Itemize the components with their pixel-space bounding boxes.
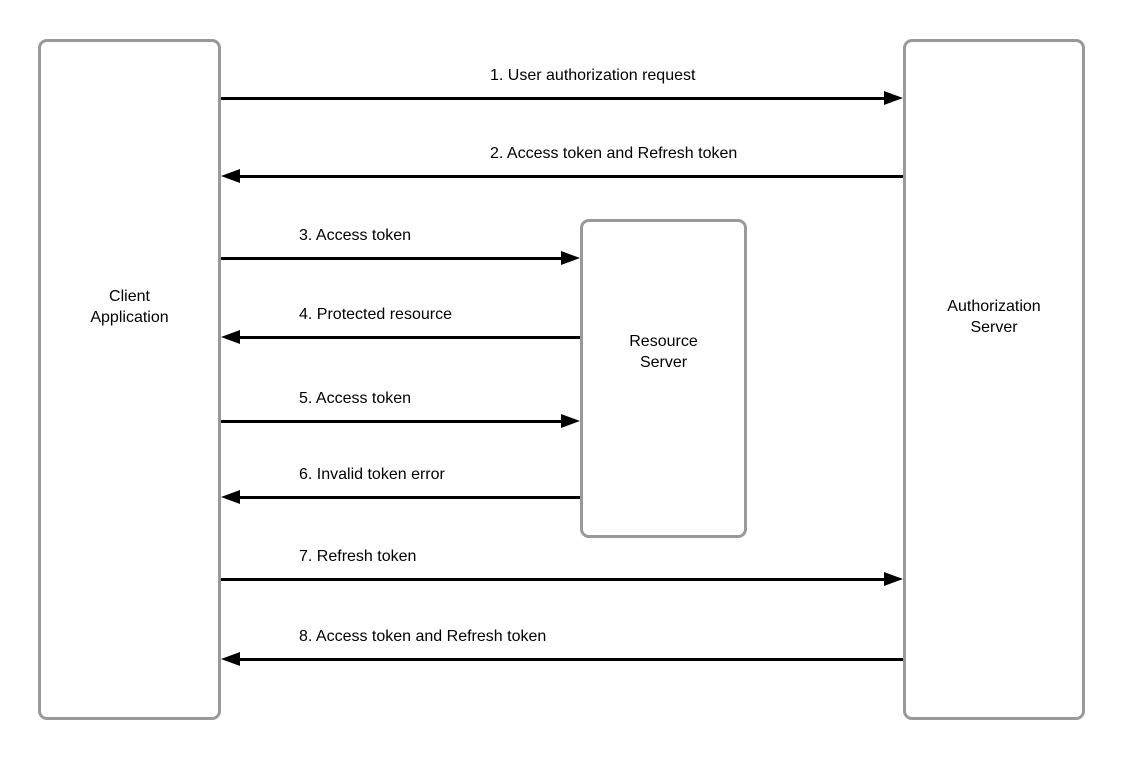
message-line — [233, 336, 580, 339]
arrowhead-right-icon — [561, 251, 580, 265]
resource-server-label: Resource Server — [583, 331, 744, 373]
client-application-box: Client Application — [38, 39, 221, 720]
message-line — [221, 420, 568, 423]
message-line — [221, 97, 891, 100]
message-line — [221, 257, 568, 260]
message-label-2: 2. Access token and Refresh token — [490, 144, 737, 164]
message-label-7: 7. Refresh token — [299, 547, 416, 567]
diagram-canvas: Client Application Resource Server Autho… — [0, 0, 1122, 760]
arrowhead-left-icon — [221, 490, 240, 504]
message-line — [233, 175, 903, 178]
message-line — [233, 496, 580, 499]
message-label-8: 8. Access token and Refresh token — [299, 627, 546, 647]
message-line — [221, 578, 891, 581]
arrowhead-left-icon — [221, 169, 240, 183]
arrowhead-left-icon — [221, 330, 240, 344]
message-label-5: 5. Access token — [299, 389, 411, 409]
arrowhead-right-icon — [561, 414, 580, 428]
message-label-4: 4. Protected resource — [299, 305, 452, 325]
authorization-server-box: Authorization Server — [903, 39, 1085, 720]
arrowhead-right-icon — [884, 572, 903, 586]
arrowhead-left-icon — [221, 652, 240, 666]
authorization-server-label: Authorization Server — [906, 296, 1082, 338]
message-label-3: 3. Access token — [299, 226, 411, 246]
message-label-6: 6. Invalid token error — [299, 465, 445, 485]
resource-server-box: Resource Server — [580, 219, 747, 538]
message-label-1: 1. User authorization request — [490, 66, 695, 86]
client-application-label: Client Application — [41, 286, 218, 328]
message-line — [233, 658, 903, 661]
arrowhead-right-icon — [884, 91, 903, 105]
